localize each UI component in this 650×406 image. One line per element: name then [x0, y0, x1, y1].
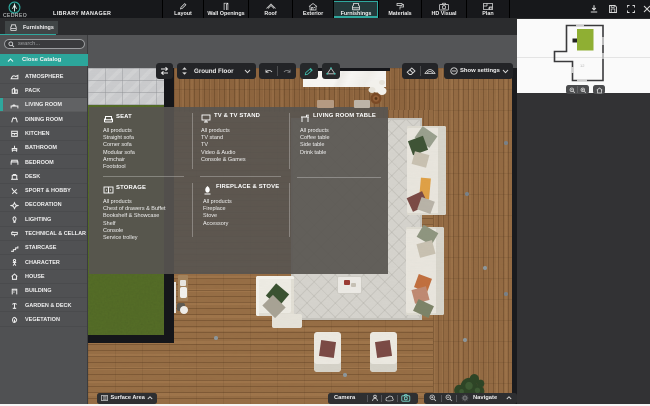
svg-text:12: 12	[580, 63, 585, 68]
svg-text:2:5: 2:5	[488, 6, 493, 10]
